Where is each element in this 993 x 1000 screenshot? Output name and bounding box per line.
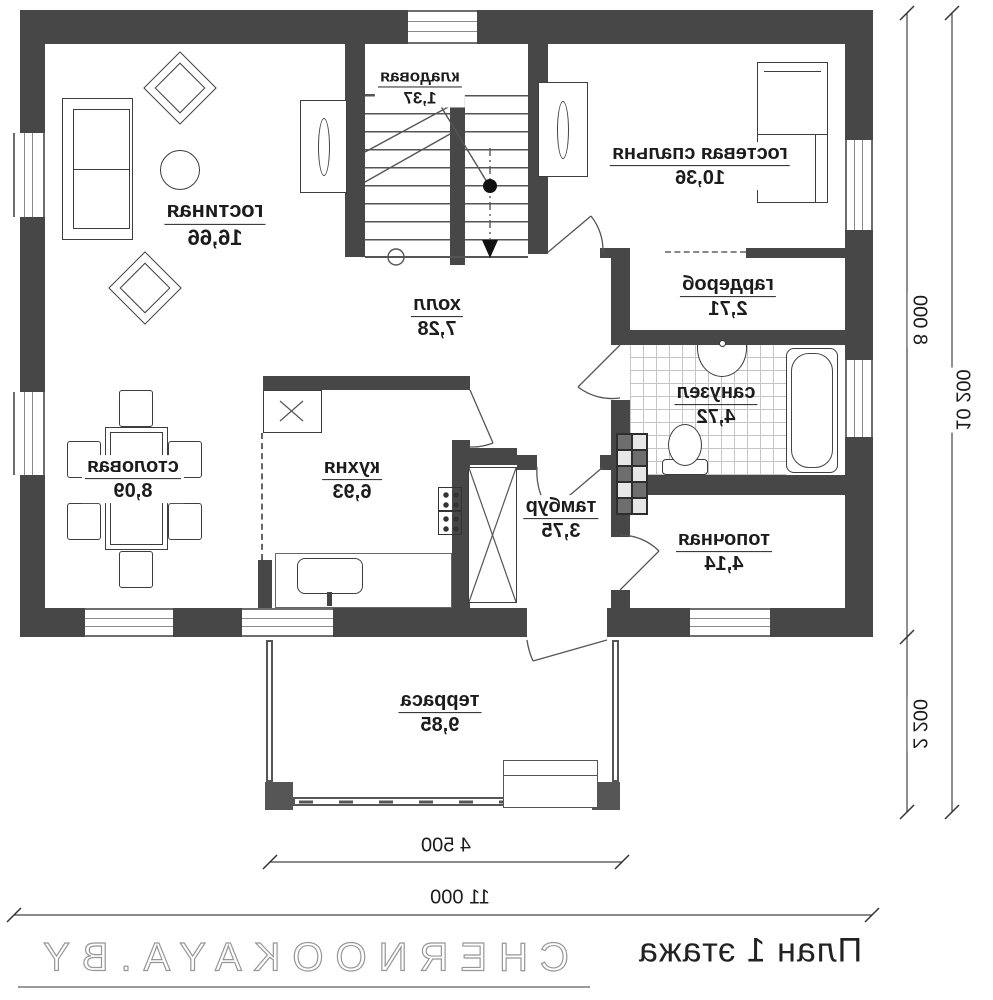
room-label-kitchen: кухня 6,93	[319, 456, 385, 504]
watermark-underline	[18, 986, 590, 988]
storage-leader-line	[437, 100, 487, 182]
room-label-boiler: топочная 4,14	[673, 528, 775, 576]
room-label-hall: холл 7,28	[408, 293, 466, 341]
dim-house-depth: 8 000	[908, 293, 931, 347]
stair-start-dot	[483, 179, 497, 193]
room-label-storage: кладовая 1,37	[375, 66, 465, 107]
room-label-guest-bedroom: гостевая спальня 10,36	[607, 142, 793, 190]
door-swings	[470, 216, 659, 661]
floor-plan: гостиная 16,66 кладовая 1,37 гостевая сп…	[0, 0, 993, 1000]
plan-title: План 1 этажа	[638, 932, 862, 971]
room-label-dining: столовая 8,09	[82, 455, 184, 503]
room-label-terrace: терраса 9,85	[396, 689, 485, 737]
door-bathroom	[578, 345, 620, 399]
corner-unit-x-icon	[280, 401, 303, 421]
room-label-wardrobe: гардероб 2,71	[677, 273, 779, 321]
door-boiler	[620, 535, 659, 590]
closet-x-icon	[469, 468, 516, 602]
stair-marks	[365, 100, 490, 265]
dim-total-depth: 10 200	[951, 367, 974, 432]
door-terrace	[527, 640, 607, 661]
dim-terrace-depth: 2 200	[908, 697, 931, 751]
door-kitchen	[470, 390, 493, 447]
dim-house-width: 11 000	[428, 887, 492, 910]
watermark: CHERNOOKAYA.BY	[31, 936, 569, 981]
room-label-bathroom: санузел 4,72	[672, 381, 761, 429]
door-bedroom	[547, 216, 603, 253]
stair-direction-arrow	[482, 240, 498, 258]
dim-terrace-width: 4 500	[419, 835, 473, 858]
room-label-tambour: тамбур 3,75	[521, 495, 602, 543]
room-label-living: гостиная 16,66	[162, 198, 269, 250]
